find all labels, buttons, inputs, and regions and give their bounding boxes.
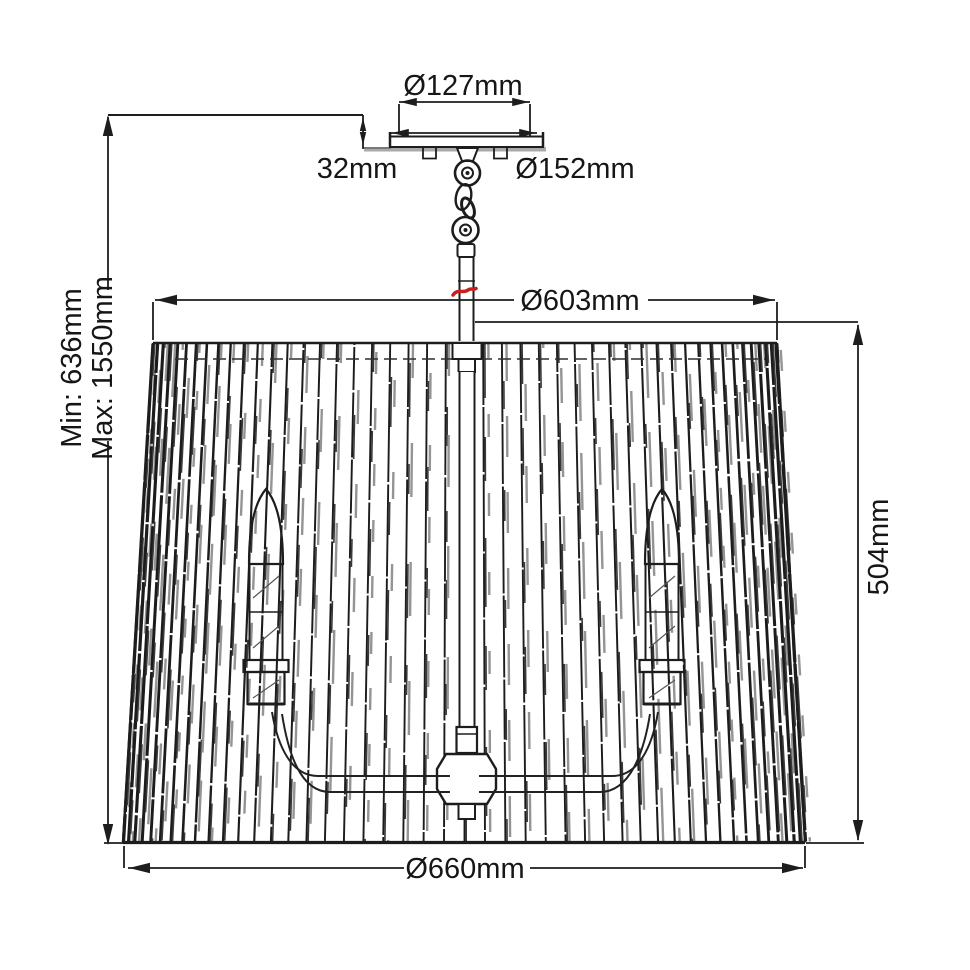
dim-arrowhead bbox=[103, 824, 113, 845]
dim-arrowhead bbox=[853, 820, 863, 841]
dim-arrowhead bbox=[360, 132, 366, 145]
dim-arrowhead bbox=[753, 295, 774, 305]
dim-arrowhead bbox=[853, 324, 863, 345]
label-suspension-max: Max: 1550mm bbox=[87, 276, 119, 460]
dim-arrowhead bbox=[156, 295, 177, 305]
dim-arrowhead bbox=[360, 118, 366, 131]
label-canopy-diameter: Ø152mm bbox=[515, 153, 634, 185]
pendant-light-dimension-drawing: Ø127mm 32mm Ø152mm Ø603mm Min: 636mm Max… bbox=[0, 0, 970, 970]
label-shade-top-diameter: Ø603mm bbox=[520, 285, 639, 317]
ext-603 bbox=[153, 302, 777, 340]
stem-cap bbox=[458, 244, 475, 257]
dim-arrowhead bbox=[129, 863, 150, 873]
hook-collar bbox=[457, 148, 478, 161]
canopy-plate bbox=[390, 137, 543, 148]
ceiling-and-canopy bbox=[108, 115, 546, 341]
label-shade-bottom-diameter: Ø660mm bbox=[405, 853, 524, 885]
stem-upper bbox=[460, 257, 474, 341]
label-canopy-inner-diameter: Ø127mm bbox=[403, 70, 522, 102]
label-shade-height: 504mm bbox=[863, 499, 895, 596]
ext-504 bbox=[475, 322, 864, 843]
candle-flange bbox=[640, 660, 685, 672]
diagram-canvas: Ø127mm 32mm Ø152mm Ø603mm Min: 636mm Max… bbox=[0, 0, 970, 970]
finial-collar bbox=[457, 727, 478, 753]
finial-ball bbox=[437, 754, 496, 804]
finial-tip bbox=[459, 804, 476, 819]
shade-fitter bbox=[453, 343, 482, 359]
ext-127 bbox=[399, 104, 530, 136]
candle-flange bbox=[244, 660, 289, 672]
label-suspension-min: Min: 636mm bbox=[56, 288, 88, 448]
fitter-neck bbox=[459, 359, 476, 372]
dim-arrowhead bbox=[103, 115, 113, 136]
label-canopy-depth: 32mm bbox=[317, 153, 398, 185]
dim-arrowhead bbox=[782, 863, 803, 873]
canopy-bracket bbox=[363, 115, 391, 148]
